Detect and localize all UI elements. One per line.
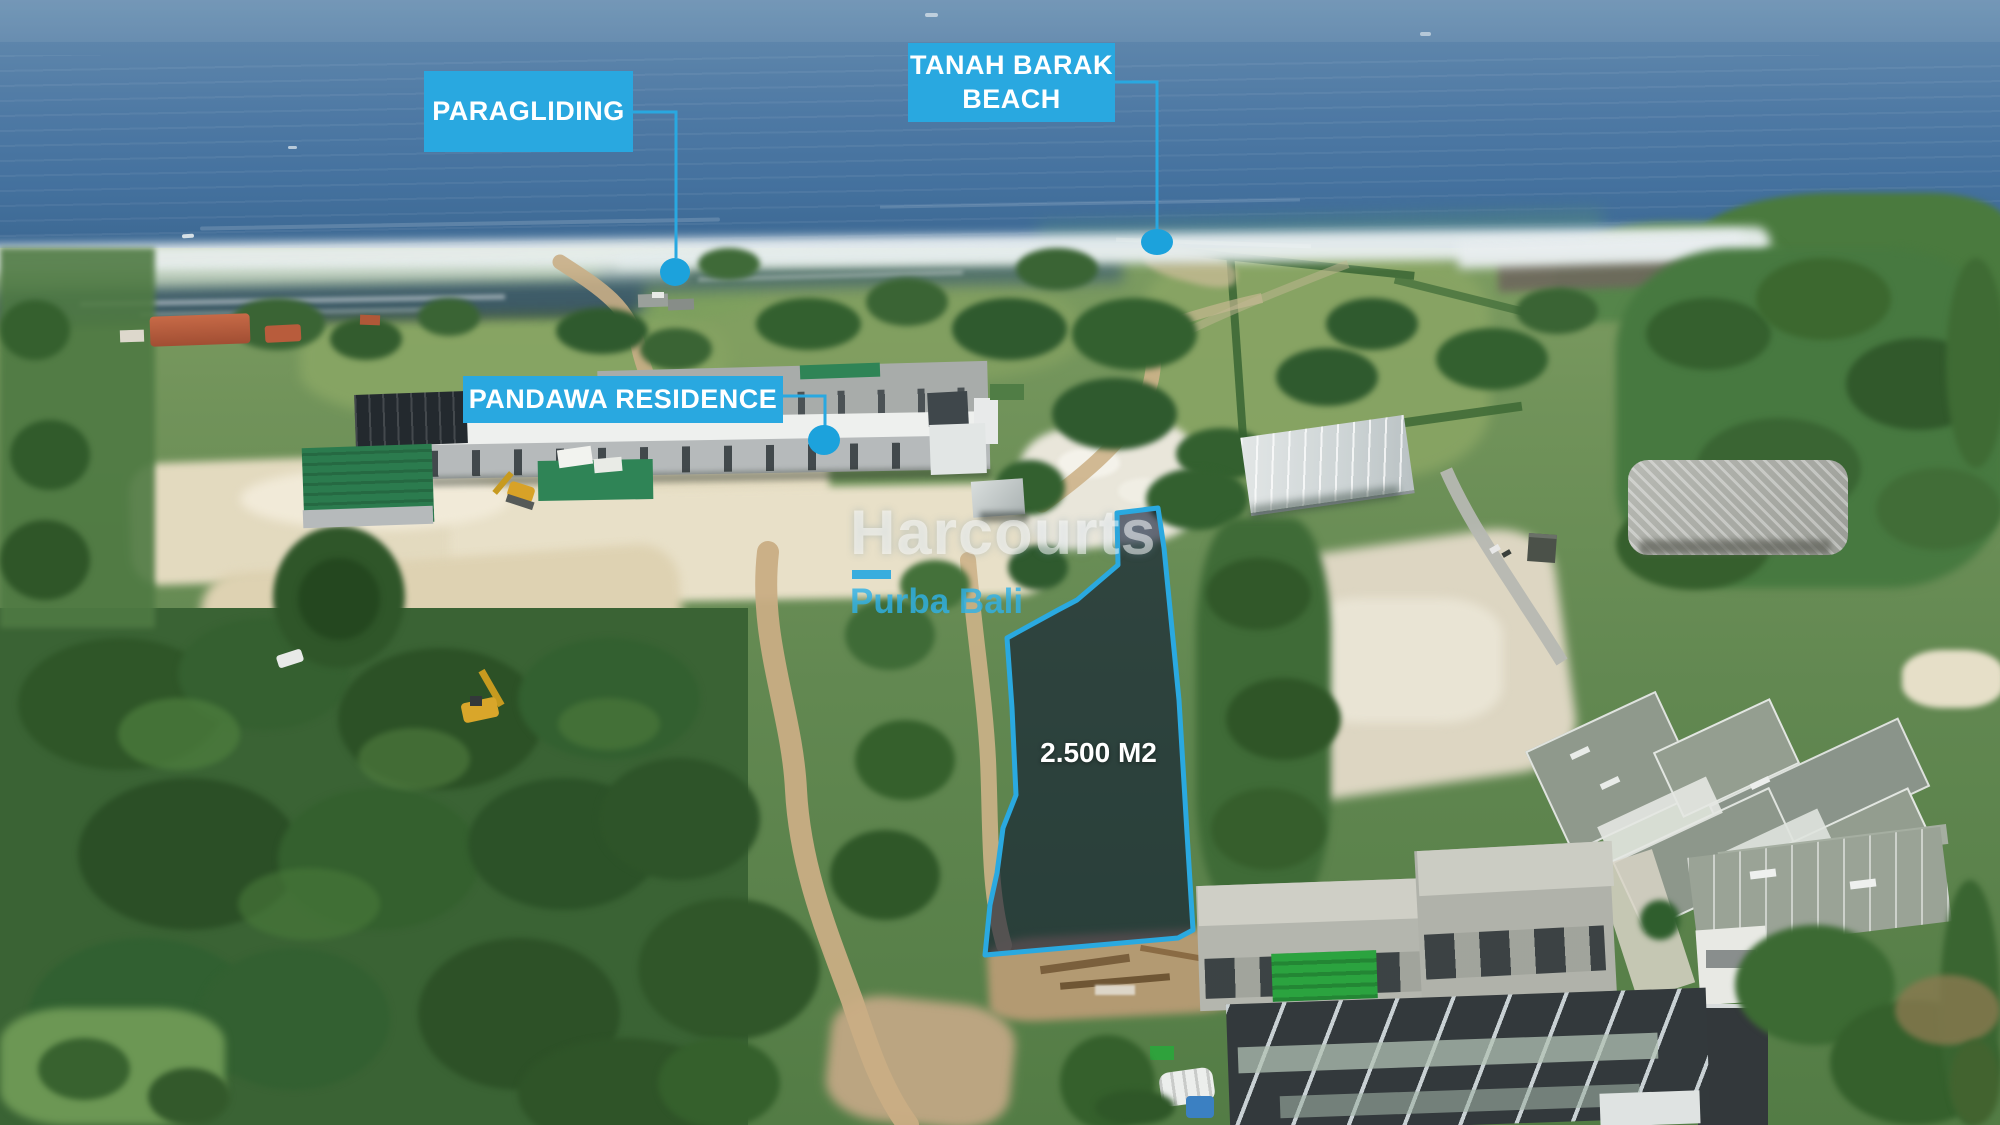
watermark: Harcourts Purba Bali [850, 502, 1270, 632]
watermark-underline-bar [852, 570, 891, 579]
label-tanah-barak-beach: TANAH BARAK BEACH [908, 43, 1115, 122]
map-marker-tanah-barak [1141, 229, 1173, 255]
leader-line-paragliding [633, 112, 676, 258]
plot-area-label: 2.500 M2 [1031, 737, 1166, 769]
aerial-photo-stage: PARAGLIDING TANAH BARAK BEACH PANDAWA RE… [0, 0, 2000, 1125]
watermark-subbrand: Purba Bali [850, 584, 1270, 619]
label-pandawa-residence-text: PANDAWA RESIDENCE [469, 383, 778, 417]
map-marker-paragliding [660, 258, 690, 286]
label-paragliding: PARAGLIDING [424, 71, 633, 152]
leader-line-tanah-barak [1115, 82, 1157, 230]
map-marker-pandawa [808, 425, 840, 455]
leader-line-pandawa [783, 396, 825, 427]
label-paragliding-text: PARAGLIDING [432, 95, 625, 129]
watermark-brand: Harcourts [850, 502, 1270, 565]
label-tanah-barak-line2: BEACH [962, 83, 1061, 117]
label-pandawa-residence: PANDAWA RESIDENCE [463, 376, 783, 423]
label-tanah-barak-line1: TANAH BARAK [910, 49, 1113, 83]
